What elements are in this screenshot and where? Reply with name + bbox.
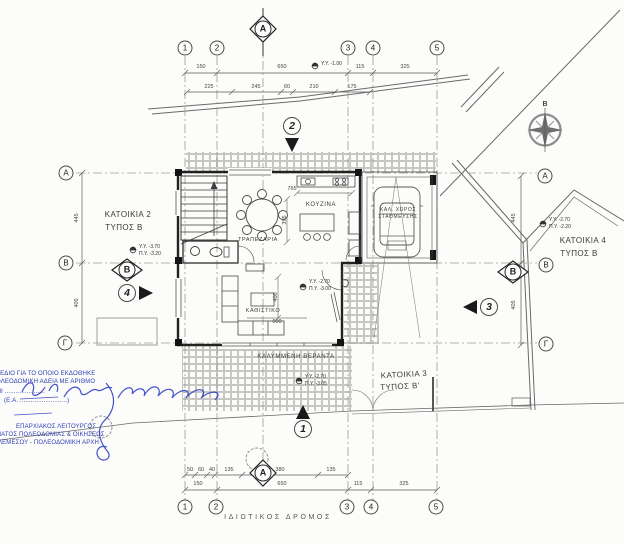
dim-bot2-115: 115	[354, 481, 363, 487]
dining-table	[237, 190, 288, 241]
level-house2-yy: Υ.Υ. -3.70	[139, 245, 160, 251]
level-living-yy: Υ.Υ. -2.70	[309, 280, 330, 286]
stamp-line1: ΧΕΔΙΟ ΓΙΑ ΤΟ ΟΠΟΙΟ ΕΚΔΟΘΗΚΕ	[0, 371, 95, 377]
level-veranda-py: Π.Υ. -3.05	[305, 382, 327, 388]
grid-col-bubble-2-bottom: 2	[209, 500, 224, 515]
room-label-dining: ΤΡΑΠΕΖΑΡΙΑ	[238, 237, 278, 243]
view-marker-2: 2	[283, 117, 301, 135]
level-living-py: Π.Υ. -3.00	[309, 287, 331, 293]
stamp-line7: ΛΕΜΕΣΟΥ - ΠΟΛΕΟΔΟΜΙΚΗ ΑΡΧΗ	[0, 440, 99, 446]
stamp-line6: ΜΑΤΟΣ ΠΟΛΕΟΔΟΜΙΑΣ & ΟΙΚΗΣΕΩΣ	[0, 432, 105, 438]
level-house4-yy: Υ.Υ. -2.70	[549, 218, 570, 224]
dim-bot-380: 380	[275, 467, 284, 473]
grid-col-bubble-5-bottom: 5	[429, 500, 444, 515]
dim-top2-175: 175	[347, 84, 356, 90]
dim-bot-135b: 135	[326, 467, 335, 473]
dim-int-600: 600	[272, 319, 281, 325]
dim-bot-60: 60	[198, 467, 204, 473]
room-label-veranda: ΚΑΛΥΜΜΕΝΗ ΒΕΡΑΝΤΑ	[257, 354, 334, 361]
stamp-line4: (Ε.Α. ..........................)	[4, 398, 69, 404]
dim-bot2-325: 325	[399, 481, 408, 487]
dim-left-445: 445	[74, 213, 80, 222]
room-label-kitchen: ΚΟΥΖΙΝΑ	[306, 202, 336, 209]
section-marker-b-left: Β	[119, 262, 136, 279]
stamp-line2: ΟΛΕΟΔΟΜΙΚΗ ΑΔΕΙΑ ΜΕ ΑΡΙΘΜΟ	[0, 379, 95, 385]
wc	[183, 241, 254, 263]
grid-row-bubble-a-right: Α	[538, 169, 553, 184]
dim-top-115: 115	[356, 64, 365, 70]
dim-top2-245: 245	[251, 84, 260, 90]
grid-col-bubble-1-top: 1	[178, 41, 193, 56]
room-label-parking-2: ΣΤΑΘΜΕΥΣΗΣ	[378, 215, 418, 221]
kitchen-fittings	[297, 176, 360, 260]
room-label-living: ΚΑΘΙΣΤΙΚΟ	[246, 308, 281, 314]
house4-label-line1: ΚΑΤΟΙΚΙΑ 4	[560, 237, 606, 246]
dim-top2-225: 225	[204, 84, 213, 90]
grid-col-bubble-4-bottom: 4	[364, 500, 379, 515]
level-marker-icons	[130, 63, 546, 384]
house-walls	[174, 168, 436, 349]
section-marker-a-top: Α	[255, 21, 272, 38]
road-label: ΙΔΙΩΤΙΚΟΣ ΔΡΟΜΟΣ	[224, 514, 332, 522]
grid-row-bubble-a-left: Α	[59, 166, 74, 181]
grid-row-bubble-b-right: Β	[539, 258, 554, 273]
floor-plan-sheet: 1 2 3 4 5 1 2 3 4 5 Α Β Γ Α Β Γ Α Α Β Β …	[0, 0, 624, 544]
grid-col-bubble-4-top: 4	[366, 41, 381, 56]
stamp-line5: ΕΠΑΡΧΙΑΚΟΣ ΛΕΙΤΟΥΡΓΟΣ	[16, 424, 96, 430]
grid-row-bubble-b-left: Β	[59, 256, 74, 271]
grid-col-bubble-3-bottom: 3	[340, 500, 355, 515]
dim-right-405: 405	[511, 300, 517, 309]
dim-bot-40: 40	[209, 467, 215, 473]
dim-int-400: 400	[273, 292, 279, 301]
plan-linework	[0, 0, 624, 544]
dim-top-325: 325	[400, 64, 409, 70]
dim-bot-50: 50	[187, 467, 193, 473]
room-label-parking-1: ΚΑΛ. ΧΩΡΟΣ	[380, 208, 416, 214]
level-house2-py: Π.Υ. -3.20	[139, 252, 161, 258]
level-veranda-yy: Υ.Υ. -2.70	[305, 375, 326, 381]
house2-label-line2: ΤΥΠΟΣ Β	[105, 224, 143, 233]
dim-top2-60: 60	[284, 84, 290, 90]
grid-col-bubble-1-bottom: 1	[178, 500, 193, 515]
view-marker-1: 1	[294, 420, 312, 438]
section-marker-a-bottom: Α	[255, 465, 272, 482]
grid-col-bubble-2-top: 2	[210, 41, 225, 56]
living-room-furniture	[222, 264, 349, 335]
dim-top-150: 150	[196, 64, 205, 70]
section-marker-b-right: Β	[505, 264, 522, 281]
dim-bot2-150: 150	[193, 481, 202, 487]
dim-top-650: 650	[277, 64, 286, 70]
view-marker-4: 4	[118, 284, 136, 302]
house4-label-line2: ΤΥΠΟΣ Β	[560, 250, 598, 259]
dim-top2-210: 210	[309, 84, 318, 90]
house2-label-line1: ΚΑΤΟΙΚΙΑ 2	[105, 211, 151, 220]
dim-int-765: 765	[287, 186, 296, 192]
compass-icon	[527, 108, 563, 152]
dim-bot2-650: 650	[277, 481, 286, 487]
stairs	[181, 176, 227, 244]
stamp-line3: ΜΙ ......................	[0, 389, 45, 395]
level-house4-py: Π.Υ. -2.20	[549, 225, 571, 231]
view-marker-3: 3	[480, 298, 498, 316]
grid-row-bubble-g-right: Γ	[539, 337, 554, 352]
tree-symbols	[90, 416, 268, 470]
grid-col-bubble-3-top: 3	[341, 41, 356, 56]
dim-right-445: 445	[511, 213, 517, 222]
grid-row-bubble-g-left: Γ	[58, 336, 73, 351]
dim-left-405: 405	[74, 298, 80, 307]
dim-int-395: 395	[282, 215, 288, 224]
north-label: Β	[542, 101, 547, 109]
dim-bot-135a: 135	[224, 467, 233, 473]
level-top: Υ.Υ. -1.00	[321, 62, 342, 68]
grid-col-bubble-5-top: 5	[430, 41, 445, 56]
car	[371, 187, 423, 257]
